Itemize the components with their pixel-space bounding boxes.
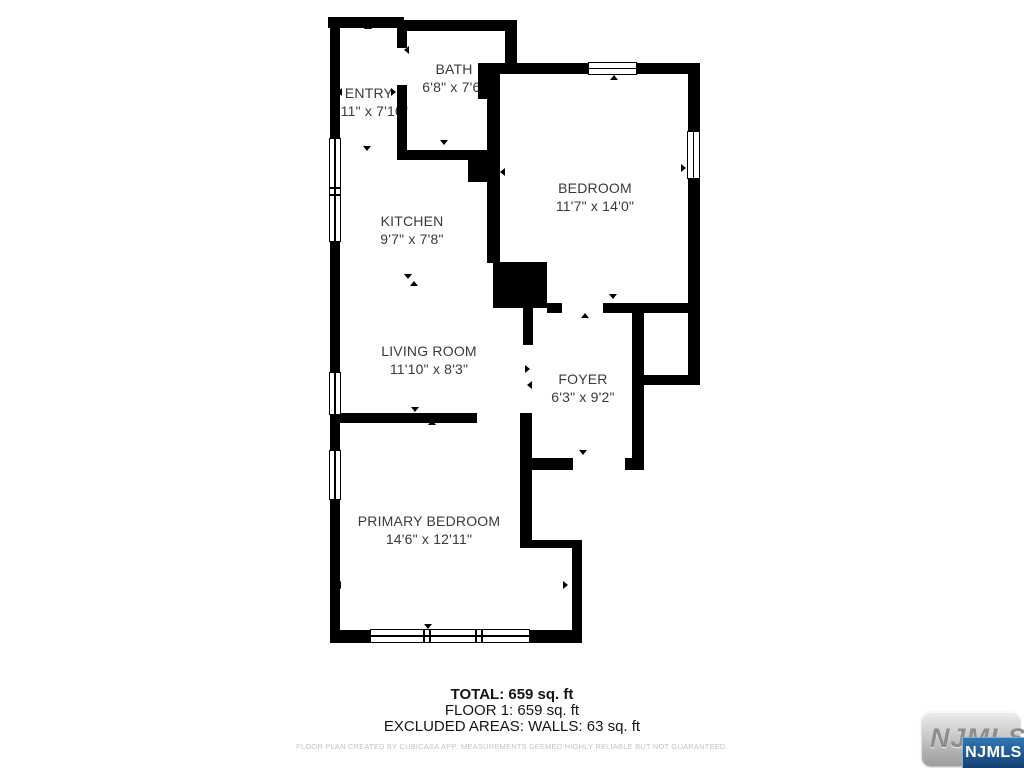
wall-segment: [532, 458, 573, 470]
wall-segment: [572, 540, 582, 643]
measure-arrow-icon: [410, 281, 418, 286]
wall-segment: [478, 63, 500, 99]
room-dimensions: 11'7" x 14'0": [556, 197, 634, 215]
window-primary-bottom: [370, 629, 530, 643]
measure-arrow-icon: [364, 24, 372, 29]
room-label-foyer: FOYER 6'3" x 9'2": [551, 370, 614, 406]
measure-arrow-icon: [404, 274, 412, 279]
measure-arrow-icon: [581, 313, 589, 318]
room-name: BATH: [422, 60, 485, 78]
measure-arrow-icon: [563, 581, 568, 589]
measure-arrow-icon: [525, 365, 530, 373]
wall-segment: [397, 28, 407, 48]
area-summary: TOTAL: 659 sq. ft FLOOR 1: 659 sq. ft EX…: [0, 687, 1024, 735]
measure-arrow-icon: [440, 26, 448, 31]
wall-segment: [493, 262, 547, 308]
window-living-room: [329, 372, 341, 415]
wall-segment: [603, 303, 700, 313]
room-label-bath: BATH 6'8" x 7'6": [422, 60, 485, 96]
floor1-area-text: FLOOR 1: 659 sq. ft: [0, 703, 1024, 719]
room-label-living-room: LIVING ROOM 11'10" x 8'3": [381, 342, 477, 378]
njmls-logo-badge: NJMLS: [962, 737, 1024, 768]
wall-segment: [330, 17, 340, 138]
measure-arrow-icon: [428, 420, 436, 425]
window-bedroom-right: [687, 131, 700, 179]
room-name: PRIMARY BEDROOM: [358, 512, 501, 530]
room-label-primary-bedroom: PRIMARY BEDROOM 14'6" x 12'11": [358, 512, 501, 548]
wall-segment: [330, 500, 340, 643]
window-bedroom-top: [588, 62, 637, 75]
measure-arrow-icon: [404, 46, 409, 54]
room-name: BEDROOM: [556, 179, 634, 197]
measure-arrow-icon: [610, 75, 618, 80]
excluded-area-text: EXCLUDED AREAS: WALLS: 63 sq. ft: [0, 719, 1024, 735]
wall-segment: [398, 20, 517, 31]
room-label-bedroom: BEDROOM 11'7" x 14'0": [556, 179, 634, 215]
floor-plan-page: ENTRY 3'11" x 7'10" BATH 6'8" x 7'6" BED…: [0, 0, 1024, 768]
measure-arrow-icon: [335, 360, 340, 368]
measure-arrow-icon: [440, 140, 448, 145]
total-area-text: TOTAL: 659 sq. ft: [0, 687, 1024, 703]
room-label-kitchen: KITCHEN 9'7" x 7'8": [380, 212, 443, 248]
wall-segment: [520, 413, 532, 548]
window-primary-left: [329, 450, 341, 500]
measure-arrow-icon: [363, 146, 371, 151]
room-dimensions: 9'7" x 7'8": [380, 230, 443, 248]
measure-arrow-icon: [424, 624, 432, 629]
wall-segment: [547, 303, 562, 313]
wall-segment: [397, 85, 407, 150]
room-dimensions: 14'6" x 12'11": [358, 530, 501, 548]
room-dimensions: 6'8" x 7'6": [422, 78, 485, 96]
wall-segment: [330, 415, 340, 450]
wall-segment: [523, 308, 533, 345]
measure-arrow-icon: [500, 168, 505, 176]
wall-segment: [688, 63, 700, 385]
measure-arrow-icon: [527, 381, 532, 389]
wall-segment: [625, 458, 644, 470]
wall-segment: [632, 312, 644, 470]
measure-arrow-icon: [411, 407, 419, 412]
wall-segment: [340, 413, 477, 423]
room-name: LIVING ROOM: [381, 342, 477, 360]
disclaimer-text: FLOOR PLAN CREATED BY CUBICASA APP; MEAS…: [0, 742, 1024, 751]
room-name: KITCHEN: [380, 212, 443, 230]
measure-arrow-icon: [336, 581, 341, 589]
measure-arrow-icon: [681, 164, 686, 172]
room-name: FOYER: [551, 370, 614, 388]
measure-arrow-icon: [609, 294, 617, 299]
room-dimensions: 6'3" x 9'2": [551, 388, 614, 406]
njmls-logo-text-front: NJMLS: [965, 744, 1022, 762]
measure-arrow-icon: [579, 450, 587, 455]
wall-segment: [330, 242, 340, 372]
measure-arrow-icon: [337, 88, 342, 96]
window-left-double: [329, 138, 341, 242]
room-dimensions: 11'10" x 8'3": [381, 360, 477, 378]
measure-arrow-icon: [391, 88, 396, 96]
